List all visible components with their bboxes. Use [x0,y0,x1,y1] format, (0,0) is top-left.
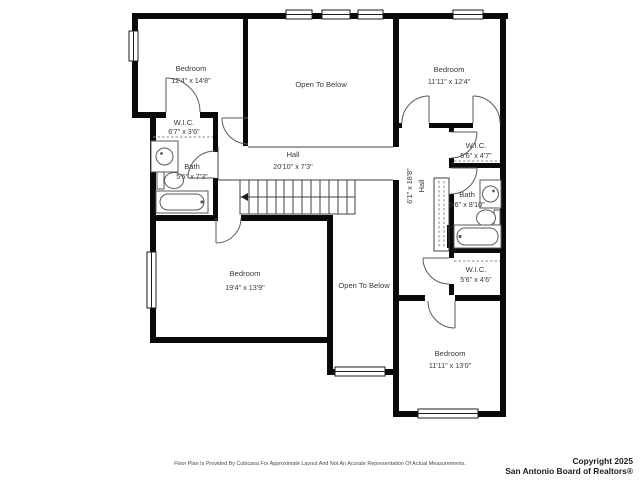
svg-text:11'11" x 12'4": 11'11" x 12'4" [428,77,471,86]
door [402,96,429,123]
window [335,367,385,376]
svg-text:20'10" x 7'3": 20'10" x 7'3" [273,162,313,171]
svg-text:W.I.C.: W.I.C. [466,265,487,274]
window [129,31,138,61]
floor-plan-drawing: Bedroom 12'4" x 14'8" Open To Below Bedr… [0,0,640,480]
svg-text:5'6" x 4'6": 5'6" x 4'6" [460,275,492,284]
window [322,10,350,19]
svg-text:11'11" x 13'0": 11'11" x 13'0" [429,361,472,370]
svg-text:Bedroom: Bedroom [230,269,261,278]
room-wic-left: W.I.C. 6'7" x 3'6" [168,118,200,136]
svg-text:5'5" x 7'3": 5'5" x 7'3" [176,172,208,181]
svg-text:6'1" x 18'8": 6'1" x 18'8" [405,168,414,204]
room-open-to-below-top: Open To Below [295,80,347,89]
window [453,10,483,19]
svg-text:6'7" x 3'6": 6'7" x 3'6" [168,127,200,136]
room-hall-main: Hall 20'10" x 7'3" [273,150,313,171]
svg-text:5'6" x 8'10": 5'6" x 8'10" [449,200,485,209]
sink-icon [483,186,499,202]
door [473,96,500,123]
footer: Floor Plan Is Provided By Cubicasa For A… [174,456,634,476]
svg-text:12'4" x 14'8": 12'4" x 14'8" [171,76,211,85]
svg-text:Bath: Bath [184,162,200,171]
window [358,10,383,19]
window [418,409,478,418]
window [286,10,312,19]
sink-icon [156,148,173,165]
svg-text:5'6" x 4'7": 5'6" x 4'7" [460,151,492,160]
svg-text:Bedroom: Bedroom [435,349,466,358]
room-hall-upper: Hall 6'1" x 18'8" [405,168,426,204]
room-open-to-below-bottom: Open To Below [338,281,390,290]
room-wic-right-top: W.I.C. 5'6" x 4'7" [460,141,492,160]
floor-plan-page: Bedroom 12'4" x 14'8" Open To Below Bedr… [0,0,640,480]
linen-closet [434,178,449,251]
room-bedroom-large: Bedroom 19'4" x 13'9" [225,269,265,292]
door [423,258,449,284]
svg-text:Hall: Hall [417,179,426,192]
room-bath-left: Bath 5'5" x 7'3" [176,162,208,181]
svg-text:Bedroom: Bedroom [434,65,465,74]
room-bedroom-top-right: Bedroom 11'11" x 12'4" [428,65,471,86]
svg-text:Bath: Bath [459,190,475,199]
toilet-icon [477,210,496,226]
door [428,301,455,328]
svg-text:Open To Below: Open To Below [295,80,347,89]
door [216,218,241,243]
window [147,252,156,308]
svg-text:Hall: Hall [286,150,299,159]
stair-direction-arrow [241,193,248,201]
copyright-line2: San Antonio Board of Realtors® [505,466,634,476]
staircase [240,180,355,214]
room-bedroom-bottom-right: Bedroom 11'11" x 13'0" [429,349,472,370]
copyright-line1: Copyright 2025 [572,456,633,466]
toilet-tank [157,172,164,189]
svg-text:W.I.C.: W.I.C. [466,141,487,150]
disclaimer-text: Floor Plan Is Provided By Cubicasa For A… [174,461,466,467]
room-bedroom-top-left: Bedroom 12'4" x 14'8" [171,64,211,85]
svg-text:W.I.C.: W.I.C. [174,118,195,127]
svg-text:Bedroom: Bedroom [176,64,207,73]
svg-text:Open To Below: Open To Below [338,281,390,290]
room-wic-right-bottom: W.I.C. 5'6" x 4'6" [460,265,492,284]
svg-text:19'4" x 13'9": 19'4" x 13'9" [225,283,265,292]
